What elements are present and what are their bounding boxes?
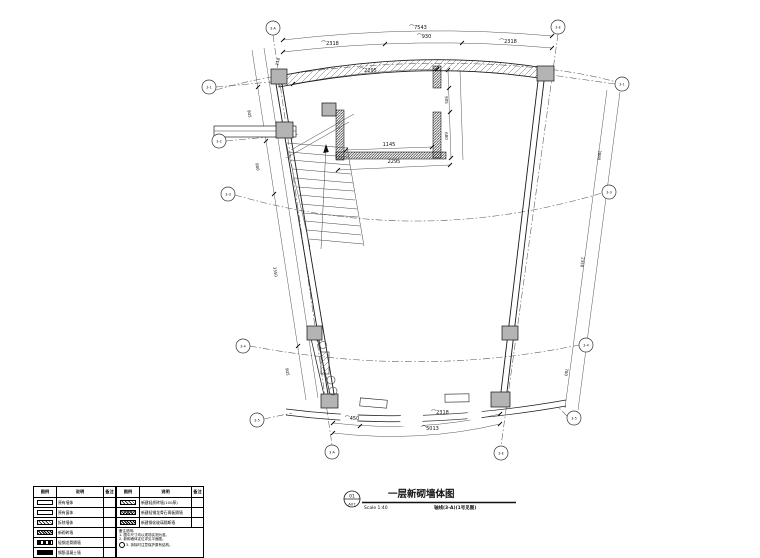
legend-row: 新建钢化玻璃隔断墙 — [117, 517, 203, 527]
legend-swatch — [120, 520, 136, 525]
top-curved-wall — [279, 60, 545, 87]
dim-left-chain-1: 905 — [246, 110, 252, 119]
column — [537, 66, 554, 81]
legend-header-remark: 备注 — [103, 487, 115, 497]
grid-bubbles: 3-A 3-E 3-1 3-2 3-3 3-4 3-5 3-1 3-3 3-4 … — [202, 20, 629, 460]
column — [502, 326, 518, 340]
svg-text:3-5: 3-5 — [571, 417, 577, 421]
legend-description: 新建钢化玻璃隔断墙 — [139, 518, 191, 527]
legend-group-right: 图例 说明 备注 新建轻质砖墙(100厚) 新建轻钢龙骨石膏板隔墙 新建钢化玻璃… — [116, 486, 204, 558]
new-wall-room-bottom — [336, 152, 446, 159]
svg-text:3-E: 3-E — [498, 452, 504, 456]
legend-description: 新建轻钢龙骨石膏板隔墙 — [139, 508, 191, 517]
dim-room-width-outer: 2295 — [388, 159, 401, 165]
legend-row: 原有墙体 — [34, 497, 115, 507]
svg-text:3-5: 3-5 — [254, 419, 260, 423]
new-wall-room-right-upper — [433, 66, 441, 88]
grid-bubble: 3-2 — [212, 134, 226, 148]
legend-description: 原有墙体 — [56, 498, 103, 507]
drawing-title: 一层新砌墙体图 — [388, 488, 455, 500]
dim-room-height-upper: 905 — [444, 96, 449, 104]
legend-row: 新建轻质砖墙(100厚) — [117, 497, 203, 507]
drawing-note: 轴线(3-A)(1号见图) — [434, 504, 476, 511]
legend-swatch — [37, 500, 53, 505]
legend-swatch — [120, 500, 136, 505]
dim-top-total: ⌒7543 — [409, 25, 427, 31]
grid-bubble: 3-A — [325, 445, 339, 459]
dim-left-chain-2: 980 — [254, 163, 260, 172]
grid-bubble: 3-4 — [579, 338, 593, 352]
grid-bubble: 3-5 — [567, 411, 581, 425]
legend-description: 钢筋混凝土墙 — [56, 548, 103, 557]
dim-left-chain-3: 3350 — [272, 266, 279, 277]
drawing-sheet: { "title_block": { "detail_number": "01"… — [0, 0, 760, 543]
grid-bubble: 3-1 — [615, 77, 629, 91]
grid-bubble: 3-4 — [236, 339, 250, 353]
dim-right-chain-3: 780 — [563, 368, 569, 377]
svg-text:3-A: 3-A — [270, 27, 276, 31]
bottom-wall-segment — [445, 394, 469, 402]
grid-bubble: 3-5 — [250, 413, 264, 427]
column — [491, 392, 510, 407]
legend-description: 新砌砖墙 — [56, 528, 103, 537]
new-wall-room-right-lower — [433, 112, 441, 158]
legend-table: 图例 说明 备注 原有墙体 原有窗体 拆除墙体 新砌砖墙 轻钢龙骨隔墙 — [33, 486, 204, 558]
dim-top-seg-mid: ⌒930 — [417, 34, 432, 40]
legend-description: 拆除墙体 — [56, 518, 103, 527]
dim-top-seg-right: ⌒2318 — [499, 39, 517, 45]
stair-break-line — [291, 114, 354, 150]
svg-text:3-4: 3-4 — [583, 344, 589, 348]
grid-bubble: 3-3 — [221, 187, 235, 201]
column — [276, 122, 293, 138]
dim-top-small: 118 — [274, 57, 281, 66]
dim-room-width-inner: 1145 — [383, 142, 396, 148]
svg-text:3-2: 3-2 — [216, 140, 222, 144]
svg-text:3-E: 3-E — [555, 26, 561, 30]
fixture-panel — [321, 352, 329, 374]
floor-plan-drawing: 3-A 3-E 3-1 3-2 3-3 3-4 3-5 3-1 3-3 3-4 … — [0, 0, 760, 543]
legend-row: 轻钢龙骨隔墙 — [34, 537, 115, 547]
title-block: 01 A07 一层新砌墙体图 Scale 1:40 轴线(3-A)(1号见图) — [344, 488, 516, 511]
legend-description: 原有窗体 — [56, 508, 103, 517]
dim-left-chain-4: 905 — [284, 368, 290, 377]
dim-right-chain-1: 3880 — [596, 150, 602, 161]
legend-swatch — [37, 510, 53, 515]
legend-header-swatch: 图例 — [117, 487, 139, 497]
legend-header-row: 图例 说明 备注 — [34, 487, 115, 497]
legend-row: 原有窗体 — [34, 507, 115, 517]
legend-header-swatch: 图例 — [34, 487, 56, 497]
stair-direction-arrow-icon — [323, 144, 329, 153]
legend-header-description: 说明 — [139, 487, 191, 497]
svg-text:3-A: 3-A — [329, 451, 335, 455]
legend-swatch — [37, 550, 53, 555]
staircase — [286, 114, 364, 249]
grid-bubble: 3-A — [266, 21, 280, 35]
legend-header-row: 图例 说明 备注 — [117, 487, 203, 497]
grid-bubble: 3-E — [494, 446, 508, 460]
legend-swatch — [37, 530, 53, 535]
legend-row: 钢筋混凝土墙 — [34, 547, 115, 557]
legend-header-description: 说明 — [56, 487, 103, 497]
bottom-wall-segment — [360, 398, 388, 408]
column — [307, 326, 322, 340]
dim-right-chain-2: 2350 — [579, 257, 585, 268]
dim-top-inner: ⌒2295 — [359, 68, 377, 74]
grid-bubble: 3-E — [551, 20, 565, 34]
walls — [214, 60, 566, 428]
drawing-scale: Scale 1:40 — [364, 505, 388, 511]
legend-group-left: 图例 说明 备注 原有墙体 原有窗体 拆除墙体 新砌砖墙 轻钢龙骨隔墙 — [33, 486, 116, 558]
legend-swatch — [37, 520, 53, 525]
svg-text:3-3: 3-3 — [225, 193, 231, 197]
legend-description: 新建轻质砖墙(100厚) — [139, 498, 191, 507]
dim-top-seg-left: ⌒2318 — [321, 41, 339, 47]
column — [321, 394, 338, 408]
detail-number: 01 — [349, 494, 355, 500]
svg-text:3-1: 3-1 — [206, 86, 212, 90]
column — [271, 69, 287, 84]
legend-header-remark: 备注 — [191, 487, 203, 497]
legend-swatch — [120, 510, 136, 515]
dim-room-height-lower: 680 — [444, 132, 449, 140]
grid-bubble: 3-1 — [202, 80, 216, 94]
legend-row: 拆除墙体 — [34, 517, 115, 527]
dim-bottom-seg-left: ⌒450 — [345, 416, 360, 422]
svg-text:3-1: 3-1 — [619, 83, 625, 87]
svg-text:3-4: 3-4 — [240, 345, 246, 349]
dim-bottom-seg-mid: ⌒2318 — [431, 410, 449, 416]
legend-note-line: 3. 拆除时注意保护原有结构。 — [126, 543, 172, 547]
sheet-number: A07 — [348, 502, 356, 507]
svg-text:3-3: 3-3 — [606, 191, 612, 195]
legend-notes: 备注说明: 1. 图中尺寸均以现场实测为准。 2. 新砌墙体定位详见平面图。 3… — [117, 527, 203, 549]
grid-bubble: 3-3 — [602, 185, 616, 199]
legend-row: 新砌砖墙 — [34, 527, 115, 537]
column — [322, 103, 336, 116]
grid-axis-lines — [216, 34, 616, 446]
legend-row: 新建轻钢龙骨石膏板隔墙 — [117, 507, 203, 517]
dim-bottom-total: ⌒5013 — [421, 426, 439, 432]
